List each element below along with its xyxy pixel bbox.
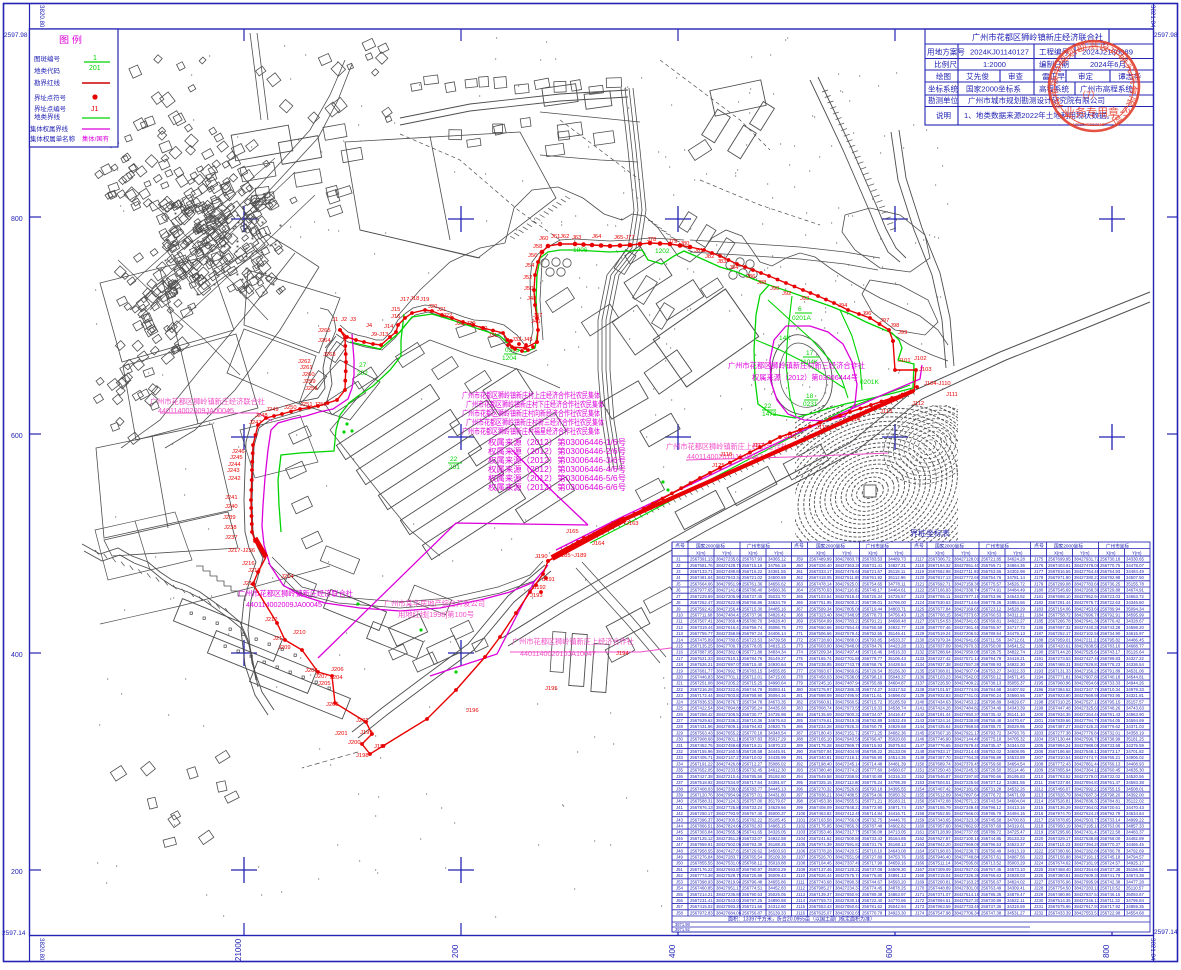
svg-text:J732567603.0038427948.00256784: J732567603.0038427948.00256784.7634423.2…: [796, 644, 907, 649]
svg-text:J692567604.9938427783.23256791: J692567604.9938427783.23256791.2134698.4…: [796, 619, 907, 624]
svg-text:Y(m): Y(m): [1132, 551, 1142, 556]
svg-text:17: 17: [806, 350, 814, 357]
svg-text:J2292567480.9638427837.5125674: J2292567480.9638427837.51256746.1535093.…: [1034, 892, 1145, 897]
svg-text:J722567728.6038427888.01256793: J722567728.6038427888.01256793.8534533.3…: [796, 637, 907, 642]
svg-text:J712567506.6638427579.42256752: J712567506.6638427579.42256752.5535146.4…: [796, 631, 907, 636]
svg-text:广州市花都区狮岭镇新庄村向新经济合作社农民集体: 广州市花都区狮岭镇新庄村向新经济合作社农民集体: [462, 408, 600, 418]
svg-text:J842567135.5938427800.32256734: J842567135.5938427800.32256734.0734416.4…: [796, 712, 907, 717]
svg-text:J93: J93: [800, 296, 809, 302]
svg-text:J1092567137.4638427120.2225673: J1092567137.4638427120.22256737.0834509.…: [796, 867, 907, 872]
svg-text:J2252567468.4038427354.6925673: J2252567468.4038427354.69256737.3835156.…: [1034, 867, 1145, 872]
svg-text:J52: J52: [523, 275, 532, 281]
svg-text:J19: J19: [420, 297, 429, 303]
svg-text:J1732567963.5938427733.4825673: J1732567963.5938427733.48256737.3634319.…: [915, 904, 1026, 909]
svg-text:22: 22: [450, 456, 458, 463]
svg-text:J1632567842.2038427869.0625679: J1632567842.2038427869.06256796.5334523.…: [915, 842, 1026, 847]
svg-text:J1492567367.7038427764.3925679: J1492567367.7038427764.39256796.8934533.…: [915, 755, 1026, 760]
svg-text:用地方案号: 用地方案号: [927, 47, 965, 57]
svg-text:J208: J208: [305, 668, 318, 674]
svg-text:J88: J88: [757, 280, 766, 286]
svg-text:J249: J249: [266, 407, 279, 413]
svg-text:J211: J211: [273, 636, 285, 642]
svg-text:J1242567530.6338427714.6425677: J1242567530.6338427714.64256778.2634854.…: [915, 600, 1026, 605]
svg-text:J1802567545.6938427268.3925672: J1802567545.6938427268.39256729.8834674.…: [1034, 588, 1145, 593]
svg-text:600: 600: [885, 944, 894, 958]
svg-text:J2052567894.2438427988.0525673: J2052567894.2438427988.05256733.5834375.…: [1034, 743, 1145, 748]
svg-text:0231: 0231: [803, 401, 818, 408]
svg-text:J532567398.9338427819.94256796: J532567398.9338427819.94256796.4834655.8…: [676, 879, 787, 884]
svg-text:J117: J117: [752, 443, 764, 449]
svg-text:3821.84: 3821.84: [1149, 5, 1156, 28]
svg-text:J52567664.0638427951.99256761.: J52567664.0638427951.99256761.3634656.62: [676, 581, 787, 586]
svg-text:18: 18: [806, 393, 814, 400]
svg-text:J1012567163.5838427766.0625673: J1012567163.5838427766.06256732.7534446.…: [796, 817, 907, 822]
svg-text:J1022567175.9538427856.3025678: J1022567175.9538427856.30256787.4834902.…: [796, 824, 907, 829]
svg-text:业务专用章: 业务专用章: [1064, 105, 1119, 119]
svg-text:J1692567200.8138427163.2525675: J1692567200.8138427163.25256756.6734824.…: [915, 879, 1026, 884]
svg-text:J172567621.3338427510.13256784: J172567621.3338427510.13256784.7635149.2…: [676, 656, 787, 661]
svg-text:图 例: 图 例: [59, 34, 82, 45]
svg-text:J12567391.1338427235.61256767.: J12567391.1338427235.61256767.9334365.12: [676, 557, 787, 562]
svg-text:J2002567934.3638427264.4625678: J2002567934.3638427264.46256781.4334963.…: [1034, 712, 1145, 717]
svg-text:J79: J79: [668, 239, 677, 245]
svg-text:J1682567215.0438427326.3625676: J1682567215.0438427326.36256766.6334928.…: [915, 873, 1026, 878]
svg-text:J1032567353.4638427317.7525673: J1032567353.4638427317.75256736.0834713.…: [796, 830, 907, 835]
svg-text:地类界线: 地类界线: [34, 112, 61, 121]
svg-text:J185~J189: J185~J189: [558, 553, 587, 559]
svg-text:J1462567746.9038427144.4825677: J1462567746.9038427144.48256775.1834705.…: [915, 737, 1026, 742]
svg-text:J742567209.3438427497.46256716: J742567209.3438427497.46256716.4634516.3…: [796, 650, 907, 655]
svg-text:J3: J3: [350, 317, 356, 323]
svg-text:J262567258.4238427308.53256730: J262567258.4238427308.53256730.7734735.9…: [676, 712, 787, 717]
svg-text:广州市坐标: 广州市坐标: [1106, 543, 1129, 550]
svg-text:J1572567155.7938427349.4925679: J1572567155.7938427349.49256796.1234413.…: [915, 805, 1026, 810]
svg-text:J212567251.0838427205.27256715: J212567251.0838427205.27256715.2534990.6…: [676, 681, 787, 686]
svg-text:J312567452.7538427458.68256719: J312567452.7538427458.68256719.2134870.2…: [676, 743, 787, 748]
svg-text:J217-J236: J217-J236: [228, 548, 255, 554]
svg-text:J111: J111: [946, 392, 958, 398]
svg-text:J258: J258: [305, 386, 318, 392]
svg-text:说明: 说明: [936, 110, 951, 120]
svg-text:J78: J78: [647, 237, 656, 243]
svg-text:J240: J240: [225, 504, 238, 510]
svg-text:J2012567839.6638427794.7625676: J2012567839.6638427794.76256764.0534594.…: [1034, 718, 1145, 723]
svg-text:J1352567308.0138427907.0425675: J1352567308.0138427907.04256753.2734322.…: [915, 668, 1026, 673]
svg-text:J912567340.8138427216.17256756: J912567340.8138427216.17256756.9034514.3…: [796, 755, 907, 760]
svg-text:J2: J2: [341, 317, 347, 323]
svg-text:艾先俊: 艾先俊: [966, 71, 989, 81]
svg-text:J592567489.9938427883.70256783: J592567489.9938427883.70256783.5334489.7…: [796, 557, 907, 562]
svg-text:J1422567191.4438427850.3725673: J1422567191.4438427850.37256735.4235141.…: [915, 712, 1026, 717]
svg-text:J2302567514.3538427246.1325671: J2302567514.3538427246.13256711.3234795.…: [1034, 898, 1145, 903]
svg-text:J112: J112: [912, 401, 924, 407]
svg-text:3820.80: 3820.80: [38, 938, 45, 961]
svg-text:广州市坐标: 广州市坐标: [747, 543, 770, 550]
svg-text:J9-J13: J9-J13: [371, 332, 388, 338]
svg-text:J562567231.4138427843.03256797: J562567231.4138427843.03256797.2534890.8…: [676, 898, 787, 903]
svg-text:J20: J20: [428, 304, 437, 310]
svg-text:J1782567971.9038427380.2325678: J1782567971.9038427380.23256782.9834507.…: [1034, 575, 1145, 580]
svg-text:J782567458.0338427538.05256798: J782567458.0338427538.05256798.1035048.3…: [796, 675, 907, 680]
svg-text:J462567125.1238427351.20256733: J462567125.1238427351.20256733.0734922.5…: [676, 836, 787, 841]
svg-text:J2212567110.2338427394.2025677: J2212567110.2338427394.20256770.3734466.…: [1034, 842, 1145, 847]
svg-text:国家2000坐标: 国家2000坐标: [816, 543, 845, 550]
svg-text:J1942567771.8138427907.8025674: J1942567771.8138427907.80256740.1834544.…: [1034, 675, 1145, 680]
svg-text:J246: J246: [232, 449, 245, 455]
svg-text:J82567262.4738427622.86256766.: J82567262.4738427622.86256766.8634634.79: [676, 600, 787, 605]
svg-text:14K: 14K: [779, 335, 791, 342]
svg-text:J1502567689.7438427370.4525675: J1502567689.7438427370.45256759.6034654.…: [915, 761, 1026, 766]
svg-text:1806: 1806: [573, 247, 588, 254]
svg-text:J972567836.2138427488.53256754: J972567836.2138427488.53256754.0635050.3…: [796, 793, 907, 798]
svg-text:J1612567128.9938427737.8525678: J1612567128.9938427737.85256789.7234725.…: [915, 830, 1026, 835]
svg-text:J2222567380.6638427282.8625678: J2222567380.6638427282.86256780.7834792.…: [1034, 848, 1145, 853]
svg-text:J232567172.4438427503.82256758: J232567172.4438427503.82256758.9035094.1…: [676, 693, 787, 698]
svg-text:J4: J4: [366, 323, 373, 329]
svg-text:J452567303.8438427565.36256741: J452567303.8438427565.36256741.6534326.0…: [676, 830, 787, 835]
svg-text:Y(m): Y(m): [894, 551, 904, 556]
svg-text:广州市花都区狮岭镇新庄村新三经济合作社: 广州市花都区狮岭镇新庄村新三经济合作社: [728, 361, 865, 370]
svg-text:J352567652.0538427233.55256732: J352567652.0538427233.55256732.4534612.3…: [676, 768, 787, 773]
svg-text:J382567408.0338427338.02256783: J382567408.0338427338.02256783.7734445.1…: [676, 786, 787, 791]
svg-text:权属来源（2012）第03006446-4/6号: 权属来源（2012）第03006446-4/6号: [488, 464, 626, 474]
svg-text:权属来源（2012）第03006446-3/6号: 权属来源（2012）第03006446-3/6号: [488, 455, 626, 465]
svg-text:J2282567754.5038427283.1025671: J2282567754.5038427283.10256710.5235110.…: [1034, 886, 1144, 891]
svg-text:Y(m): Y(m): [961, 551, 971, 556]
svg-text:J2122567456.0738427992.2125675: J2122567456.0738427992.21256755.1534508.…: [1034, 786, 1145, 791]
svg-text:3821.84: 3821.84: [1149, 938, 1156, 961]
svg-text:点号: 点号: [675, 543, 685, 549]
svg-text:J204: J204: [330, 675, 343, 681]
svg-text:J342567191.2238427426.89256712: J342567191.2238427426.89256712.2735086.0…: [676, 761, 787, 766]
svg-text:J243: J243: [227, 468, 240, 474]
svg-text:J206: J206: [331, 667, 344, 673]
svg-text:J54: J54: [525, 263, 535, 269]
svg-text:J1: J1: [332, 317, 338, 323]
svg-text:J165: J165: [566, 529, 579, 535]
svg-text:广州市花都区狮岭镇新庄村上庄经济合作社农民集体: 广州市花都区狮岭镇新庄村上庄经济合作社农民集体: [462, 390, 600, 400]
svg-text:X(m): X(m): [868, 551, 878, 556]
svg-text:J50: J50: [524, 286, 533, 292]
svg-text:J60: J60: [539, 236, 548, 242]
svg-text:J214: J214: [281, 574, 294, 580]
svg-text:J2272567876.9638427995.9625674: J2272567876.9638427995.96256742.3834477.…: [1034, 879, 1145, 884]
svg-text:J432567396.3738427300.51256782: J432567396.3738427300.51256782.2235185.4…: [676, 817, 787, 822]
svg-text:J1122567985.2738427234.3725677: J1122567985.2738427234.37256774.4534878.…: [796, 886, 907, 891]
svg-text:J1412567424.2838427484.8225673: J1412567424.2838427484.82256734.4934343.…: [915, 706, 1026, 711]
svg-text:J302567908.6838427801.19256787: J302567908.6838427801.19256787.8335017.2…: [676, 737, 787, 742]
svg-text:J1712567371.0738427514.1625679: J1712567371.0738427514.16256795.3534879.…: [915, 892, 1026, 897]
svg-text:J1822567291.4438427975.7325672: J1822567291.4438427975.73256722.6334346.…: [1034, 600, 1145, 605]
svg-text:审定: 审定: [1078, 71, 1093, 81]
svg-text:用地红线[1998]第100号: 用地红线[1998]第100号: [398, 610, 474, 619]
svg-text:J812567598.0938427495.97256711: J812567598.0938427495.97256711.6134598.0…: [796, 693, 907, 698]
svg-text:权属来源（2012）第03006446-2/6号: 权属来源（2012）第03006446-2/6号: [488, 446, 626, 456]
svg-text:J2232567156.8838427191.1525674: J2232567156.8838427191.15256745.1834794.…: [1034, 855, 1145, 860]
svg-text:J1362567103.2338427542.0325675: J1362567103.2338427542.03256750.1234571.…: [915, 675, 1026, 680]
svg-text:J852567479.6138427919.36256782: J852567479.6138427919.36256782.8934532.4…: [796, 718, 907, 723]
svg-text:J48: J48: [527, 296, 536, 302]
svg-text:J482567958.5538427427.81256729: J482567958.5538427427.81256729.6234503.9…: [676, 848, 787, 853]
svg-text:广州市某华房地产综合开发公司: 广州市某华房地产综合开发公司: [384, 599, 485, 608]
svg-text:600: 600: [11, 433, 23, 440]
svg-text:J2202567329.1738427638.8825676: J2202567329.1738427638.88256768.0034482.…: [1034, 836, 1145, 841]
svg-text:J207: J207: [315, 674, 328, 680]
svg-text:J2242567674.6238427181.9525672: J2242567674.6238427181.95256724.5734925.…: [1034, 861, 1145, 866]
svg-text:27: 27: [359, 362, 367, 369]
svg-text:J1322567288.6438427950.0825672: J1322567288.6438427950.08256728.7534822.…: [915, 650, 1026, 655]
svg-text:J2092567855.9438427364.1125676: J2092567855.9438427364.11256760.4534635.…: [1034, 768, 1145, 773]
svg-text:J612567333.1738427476.69256721: J612567333.1738427476.69256721.6735118.1…: [796, 569, 906, 574]
svg-text:J250: J250: [284, 405, 297, 411]
svg-text:J642567570.6338427116.82256749: J642567570.6338427116.82256749.1734464.6…: [796, 588, 907, 593]
svg-text:J1892567420.6138427838.5925678: J1892567420.6138427838.59256783.1634688.…: [1034, 644, 1145, 649]
svg-text:440114002010JA10047: 440114002010JA10047: [520, 649, 596, 658]
svg-text:J58: J58: [533, 244, 542, 250]
svg-text:J127~J163: J127~J163: [610, 521, 639, 527]
svg-text:J80: J80: [680, 241, 689, 247]
svg-text:广州市花都区狮岭镇新庄村下庄经济合作社农民集体: 广州市花都区狮岭镇新庄村下庄经济合作社农民集体: [466, 399, 604, 409]
svg-text:Y(m): Y(m): [842, 551, 852, 556]
svg-text:d192: d192: [533, 585, 546, 591]
svg-text:J15: J15: [391, 307, 400, 313]
svg-text:J264: J264: [318, 338, 331, 344]
svg-text:J198: J198: [356, 753, 369, 759]
svg-text:J962567270.3238427526.81256793: J962567270.3238427526.81256793.1834395.5…: [796, 786, 907, 791]
svg-text:200: 200: [451, 944, 460, 958]
svg-text:J102: J102: [914, 356, 927, 362]
svg-text:J241: J241: [225, 495, 238, 501]
svg-text:J102567711.6838427484.41256737: J102567711.6838427484.41256737.9634826.4…: [676, 613, 787, 618]
svg-text:J82: J82: [705, 254, 714, 260]
svg-text:J1932567131.3338427156.2625679: J1932567131.3338427156.26256791.8934531.…: [1034, 668, 1145, 673]
svg-text:J182567526.2138427697.07256715: J182567526.2138427697.07256715.4034930.6…: [676, 662, 787, 667]
svg-text:Y(m): Y(m): [722, 551, 732, 556]
svg-text:J752567165.7438427701.86256779: J752567165.7438427701.86256779.7735106.4…: [796, 656, 907, 661]
svg-text:J1102567626.4438427575.7425677: J1102567626.4438427575.74256776.8034891.…: [796, 873, 907, 878]
svg-text:J1482567933.1738427214.4525675: J1482567933.1738427214.45256752.0234608.…: [915, 749, 1026, 754]
svg-text:J422567250.1738427793.97256757: J422567250.1738427793.97256757.4035000.3…: [676, 811, 787, 816]
svg-text:图斑编号: 图斑编号: [34, 54, 60, 63]
svg-text:坐标系统: 坐标系统: [928, 84, 958, 94]
svg-text:界桩坐标表: 界桩坐标表: [910, 528, 950, 538]
svg-text:J2102567763.5238427279.0725673: J2102567763.5238427279.07256732.0234520.…: [1034, 774, 1145, 779]
svg-text:J1392567932.8338427741.0125679: J1392567932.8338427741.01256790.2434560.…: [915, 693, 1026, 698]
svg-text:J84: J84: [729, 265, 739, 271]
svg-text:J512567176.2238427693.87256790: J512567176.2238427693.87256790.9735003.2…: [676, 867, 787, 872]
svg-text:J652567103.5438427818.45256725: J652567103.5438427818.45256725.3434725.6…: [796, 594, 907, 599]
svg-text:J892567175.2838427869.75256715: J892567175.2838427869.75256715.9335075.6…: [796, 743, 907, 748]
svg-text:J83: J83: [717, 259, 726, 265]
svg-text:J1882567959.0138427211.2125679: J1882567959.0138427211.21256795.8234486.…: [1034, 637, 1145, 642]
svg-text:J1072567526.7038427551.9825672: J1072567526.7038427551.98256727.8934753.…: [796, 855, 907, 860]
svg-text:J30: J30: [478, 326, 487, 332]
svg-text:1473: 1473: [762, 411, 777, 418]
svg-text:J1442567435.6438427959.5925678: J1442567435.6438427959.59256788.7035029.…: [915, 724, 1026, 729]
svg-text:国家2000坐标: 国家2000坐标: [935, 543, 964, 550]
svg-text:J195: J195: [545, 686, 558, 692]
svg-text:J1222567166.9338427338.7425677: J1222567166.9338427338.74256774.9134484.…: [915, 588, 1026, 593]
svg-text:J1312567837.0938427970.3325675: J1312567837.0938427970.33256750.0034541.…: [915, 644, 1026, 649]
svg-text:X(m): X(m): [816, 551, 826, 556]
svg-text:J922567198.4038427245.14256714: J922567198.4038427245.14256714.4834481.3…: [796, 761, 907, 766]
svg-text:勘界红线: 勘界红线: [34, 78, 61, 87]
svg-text:J2132567826.7938427687.3425679: J2132567826.7938427687.34256798.2034392.…: [1034, 793, 1145, 798]
svg-text:J502567855.5538427531.05256768: J502567855.5538427531.05256768.1235018.8…: [676, 861, 787, 866]
svg-text:权属来源（2012）第03006446-6/6号: 权属来源（2012）第03006446-6/6号: [488, 482, 626, 492]
svg-text:J272567629.6238427336.21256710: J272567629.6238427336.21256710.3634676.6…: [676, 718, 787, 723]
svg-text:J210: J210: [293, 630, 306, 636]
svg-text:400: 400: [11, 652, 23, 659]
svg-text:比例尺: 比例尺: [934, 59, 957, 69]
svg-text:J2042567130.4438427596.7825673: J2042567130.4438427596.78256738.9935181.…: [1034, 737, 1145, 742]
svg-text:J572567415.0238427593.25256721: J572567415.0238427593.25256721.6634312.8…: [676, 904, 787, 909]
svg-text:J1172567306.7238427128.0125672: J1172567306.7238427128.01256721.8534624.…: [915, 557, 1026, 562]
svg-text:J1832567154.0638427453.6025678: J1832567154.0638427453.60256789.9435094.…: [1034, 606, 1145, 611]
svg-text:集体权属界线: 集体权属界线: [30, 124, 69, 133]
svg-text:广州市坐标: 广州市坐标: [866, 543, 889, 550]
svg-text:2597.98: 2597.98: [1154, 32, 1178, 39]
svg-text:J792567245.1638427487.94256755: J792567245.1638427487.94256755.8934604.8…: [796, 681, 907, 686]
svg-text:X(m): X(m): [696, 551, 706, 556]
svg-text:J114: J114: [848, 417, 861, 423]
svg-text:J18: J18: [410, 296, 419, 302]
svg-text:J1602567957.6038427862.9725678: J1602567957.6038427862.97256787.6934319.…: [915, 824, 1026, 829]
svg-text:J2062567186.6838427548.1325677: J2062567186.6838427548.13256773.1734701.…: [1034, 749, 1145, 754]
svg-text:J1552567612.0938427897.6425677: J1552567612.0938427897.64256776.7234671.…: [915, 793, 1026, 798]
svg-text:X(m): X(m): [1106, 551, 1116, 556]
svg-text:权属来源（2012）第03006444号: 权属来源（2012）第03006444号: [752, 373, 858, 382]
svg-text:J2032567277.3838427776.8425673: J2032567277.3838427776.84256732.0134358.…: [1034, 730, 1145, 735]
svg-text:J602567326.4038427363.38256731: J602567326.4038427363.38256731.4134827.2…: [796, 563, 907, 568]
svg-text:Y(m): Y(m): [774, 551, 784, 556]
svg-text:J1382567101.5738427774.9125678: J1382567101.5738427774.91256784.6834407.…: [915, 687, 1026, 692]
svg-text:J259: J259: [303, 379, 316, 385]
svg-text:J682567323.4038427348.95256778: J682567323.4038427348.95256778.7334756.4…: [796, 613, 907, 618]
svg-text:J97: J97: [880, 318, 889, 324]
svg-text:J104-J110: J104-J110: [924, 381, 951, 387]
svg-text:J1792567299.0838427783.6625673: J1792567299.0838427783.66256736.2535155.…: [1034, 581, 1145, 586]
svg-text:J1192567662.9838427711.9225675: J1192567662.9838427711.92256753.5534302.…: [915, 569, 1026, 574]
svg-text:J1052567974.3938427591.8225673: J1052567974.3938427591.82256731.7635168.…: [796, 842, 907, 847]
svg-text:J22567581.7638427428.75256715.: J22567581.7638427428.75256715.1634756.18: [676, 563, 787, 568]
svg-text:200: 200: [11, 869, 23, 876]
svg-text:J362567427.3838427210.44256785: J362567427.3838427210.44256785.5635192.8…: [676, 774, 787, 779]
svg-text:J1252567677.8438427169.6525672: J1252567677.8438427169.65256723.1234528.…: [915, 606, 1026, 611]
svg-text:J1162567625.0738427902.6525677: J1162567625.0738427902.65256770.7834923.…: [796, 910, 907, 915]
svg-text:广州市花都区狮岭镇新庄经济联合社: 广州市花都区狮岭镇新庄经济联合社: [238, 589, 353, 598]
svg-text:J1472567776.6538427679.4025673: J1472567776.6538427679.40256735.4734344.…: [915, 743, 1026, 748]
svg-text:J472567959.9138427502.06256793: J472567959.9138427502.06256793.3935188.2…: [676, 842, 787, 847]
svg-text:J2152567136.2938427364.0225672: J2152567136.2938427364.02256720.6134470.…: [1034, 805, 1145, 810]
svg-text:J237: J237: [225, 535, 238, 541]
svg-text:J63: J63: [572, 235, 581, 241]
svg-text:202: 202: [357, 370, 368, 377]
svg-text:国家2000坐标系: 国家2000坐标系: [966, 84, 1021, 94]
svg-text:J2022567387.2738427425.3125677: J2022567387.2738427425.31256779.6234371.…: [1034, 724, 1145, 729]
svg-text:J1182567194.3238427851.4025675: J1182567194.3238427851.40256759.7134864.…: [915, 563, 1026, 568]
svg-text:J582567972.8338427684.06256756: J582567972.8338427684.06256756.8735139.3…: [676, 910, 787, 915]
svg-text:Y(m): Y(m): [1013, 551, 1023, 556]
svg-text:J802567275.9738427386.35256774: J802567275.9738427386.35256774.2734317.5…: [796, 687, 907, 692]
svg-text:点号: 点号: [1034, 543, 1044, 549]
svg-text:J2082567772.4338427861.4425676: J2082567772.4338427861.44256769.1334408.…: [1034, 761, 1145, 766]
svg-text:J32567133.7138427489.85256716.: J32567133.7138427489.85256716.2234381.55: [676, 569, 787, 574]
svg-text:J247: J247: [249, 420, 262, 426]
svg-text:J1532567504.5138427225.5025672: J1532567504.5138427225.50256727.1234381.…: [915, 780, 1026, 785]
svg-text:J92567592.4238427156.45256715.: J92567592.4238427156.45256715.3034485.16: [676, 606, 787, 611]
svg-text:J245: J245: [230, 455, 243, 461]
svg-text:1: 1: [93, 55, 97, 62]
svg-text:J332567405.7138427147.27256710: J332567405.7138427147.27256710.0234435.9…: [676, 755, 787, 760]
svg-text:J1672567309.0938427927.0125676: J1672567309.0938427927.01256767.4534573.…: [915, 867, 1026, 872]
svg-text:J72567229.6938427205.90256737.: J72567229.6938427205.90256737.4535033.70: [676, 594, 787, 599]
svg-text:440114002009JA00045: 440114002009JA00045: [158, 406, 234, 415]
svg-text:J1342567837.3838427557.3625678: J1342567837.3838427557.36256788.9334932.…: [915, 662, 1026, 667]
svg-text:Y(m): Y(m): [1080, 551, 1090, 556]
svg-text:201: 201: [449, 464, 460, 471]
svg-text:6: 6: [798, 306, 802, 313]
svg-text:界址点编号: 界址点编号: [34, 104, 66, 113]
svg-text:J522567774.3838427529.75256725: J522567774.3838427529.75256725.8935009.4…: [676, 873, 787, 878]
svg-text:J142567475.8938427780.67256723: J142567475.8938427780.67256723.5334739.5…: [676, 637, 787, 642]
svg-text:J822567660.9138427560.52256715: J822567660.9138427560.52256715.7235185.5…: [796, 699, 907, 704]
svg-text:J1622567627.8738427100.1625674: J1622567627.8738427100.16256744.8535133.…: [915, 836, 1026, 841]
svg-text:J1152567553.4338427850.6125678: J1152567553.4338427850.61256781.6235042.…: [796, 904, 907, 909]
svg-text:（7）: （7）: [1077, 90, 1100, 100]
svg-text:J192567681.7738427992.79256783: J192567681.7738427992.79256783.1534555.8…: [676, 668, 787, 673]
svg-text:J115: J115: [816, 425, 828, 431]
svg-text:J164: J164: [592, 541, 605, 547]
svg-text:J32-J45: J32-J45: [512, 337, 533, 343]
svg-text:J1852567266.7838427941.3625677: J1852567266.7838427941.36256776.4234328.…: [1034, 619, 1145, 624]
svg-text:J932567380.4838427374.20256777: J932567380.4838427374.20256777.6034560.6…: [796, 768, 907, 773]
svg-text:J96: J96: [862, 311, 871, 317]
svg-text:1204: 1204: [502, 355, 517, 362]
svg-text:J1112567743.6838427890.3025674: J1112567743.6838427890.30256744.6734593.…: [796, 879, 907, 884]
svg-text:国家2000坐标: 国家2000坐标: [1054, 543, 1083, 550]
svg-text:4401040067318: 4401040067318: [1072, 122, 1105, 127]
svg-text:J902567507.9438427404.90256759: J902567507.9438427404.90256759.2235133.0…: [796, 749, 907, 754]
svg-text:J662567751.9538427600.27256739: J662567751.9538427600.27256739.0134766.0…: [796, 600, 907, 605]
svg-text:J132567755.7738427358.86256797: J132567755.7738427358.86256797.2434406.1…: [676, 631, 787, 636]
svg-text:J216: J216: [242, 561, 255, 567]
svg-text:J1992567447.4838427325.6925674: J1992567447.4838427325.69256748.2634743.…: [1034, 706, 1145, 711]
svg-text:J260: J260: [302, 372, 315, 378]
svg-text:800: 800: [1102, 944, 1111, 958]
svg-text:J2322567433.3938427553.5125672: J2322567433.3938427553.51256722.9834554.…: [1034, 910, 1145, 915]
svg-text:国家2000坐标: 国家2000坐标: [696, 543, 725, 550]
svg-text:J42567481.6438427843.34256721.: J42567481.6438427843.34256721.0234500.69: [676, 575, 787, 580]
svg-text:J212: J212: [265, 617, 278, 623]
svg-text:J1862567697.3238427440.3825674: J1862567697.3238427440.38256743.2834598.…: [1034, 625, 1145, 630]
svg-text:J1972567923.9038427669.9525679: J1972567923.9038427669.95256793.9534321.…: [1034, 693, 1145, 698]
svg-text:201: 201: [89, 65, 101, 72]
svg-text:J1272567154.5338427341.6325676: J1272567154.5338427341.63256769.8134922.…: [915, 619, 1026, 624]
svg-text:J832567808.7438427973.55256719: J832567808.7438427973.55256719.3334538.7…: [796, 706, 907, 711]
svg-text:0201A: 0201A: [792, 315, 811, 322]
svg-text:J412567876.1338427725.88256733: J412567876.1338427725.88256733.2434629.6…: [676, 805, 787, 810]
svg-text:J16: J16: [391, 314, 400, 320]
svg-text:J492567276.8438427283.73256765: J492567276.8438427283.73256765.5435109.3…: [676, 855, 787, 860]
svg-text:J200: J200: [348, 740, 361, 746]
svg-text:J862567234.2838427926.34256760: J862567234.2838427926.34256760.7834929.6…: [796, 724, 907, 729]
svg-text:J1542567407.4238427181.8925673: J1542567407.4238427181.89256731.2834532.…: [915, 786, 1026, 791]
svg-text:J1452567667.1838427921.1725679: J1452567667.1838427921.17256793.7234793.…: [915, 730, 1026, 735]
svg-text:J1762567403.9138427478.0825677: J1762567403.9138427478.08256770.7534478.…: [1034, 563, 1145, 568]
svg-text:J1332567227.4238427571.1425679: J1332567227.4238427571.14256794.7934419.…: [915, 656, 1026, 661]
svg-text:J992567408.0938427848.23256772: J992567408.0938427848.23256772.9034871.7…: [796, 805, 907, 810]
